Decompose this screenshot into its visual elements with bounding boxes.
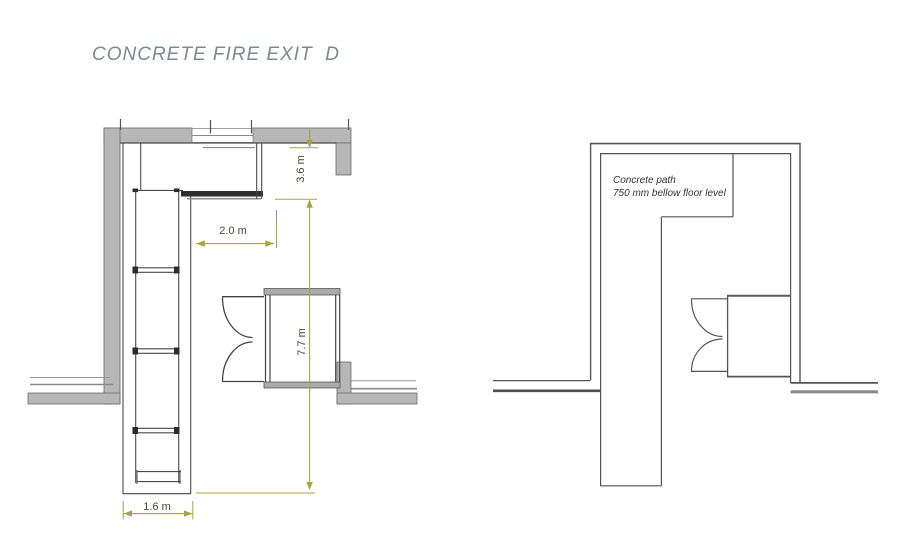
concrete-path-annotation: Concrete path750 mm bellow floor level xyxy=(613,174,726,200)
stairs xyxy=(123,143,192,494)
concrete-path-outline xyxy=(600,153,733,486)
double-door xyxy=(691,299,727,372)
dimension-label-stair-width: 1.6 m xyxy=(143,501,171,513)
floor-plan-drawing xyxy=(0,0,900,536)
stair-nosing-marks xyxy=(133,189,180,435)
dimensions xyxy=(123,128,318,520)
double-door xyxy=(222,297,264,382)
dimension-label-top-height: 3.6 m xyxy=(295,155,307,183)
walls xyxy=(28,128,417,404)
dimension-label-total-height: 7.7 m xyxy=(296,328,308,356)
dimension-label-passage-width: 2.0 m xyxy=(219,225,247,237)
annotation-line-2: 750 mm bellow floor level xyxy=(613,187,726,200)
left-plan xyxy=(28,119,417,520)
drawing-title: CONCRETE FIRE EXIT D xyxy=(92,44,340,66)
annotation-line-1: Concrete path xyxy=(613,174,726,187)
drawing-canvas: CONCRETE FIRE EXIT D 3.6 m 2.0 m 7.7 m 1… xyxy=(0,0,900,536)
vestibule xyxy=(727,295,791,377)
wall-edges xyxy=(30,143,417,389)
